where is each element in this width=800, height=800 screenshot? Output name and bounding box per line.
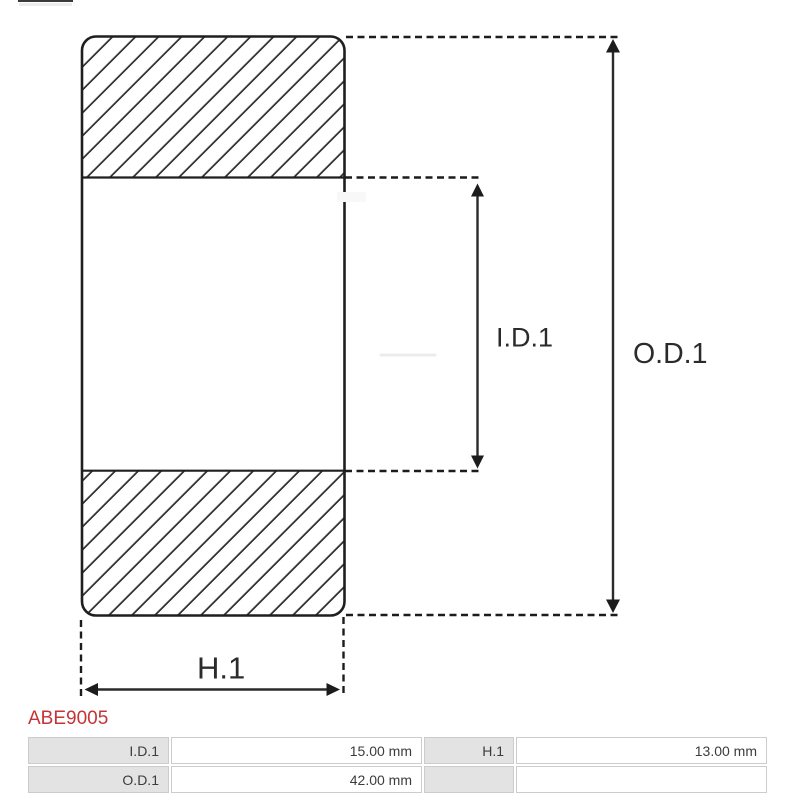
svg-text:O.D.1: O.D.1 bbox=[633, 338, 707, 370]
svg-text:H.1: H.1 bbox=[197, 651, 245, 686]
svg-text:I.D.1: I.D.1 bbox=[496, 323, 553, 353]
